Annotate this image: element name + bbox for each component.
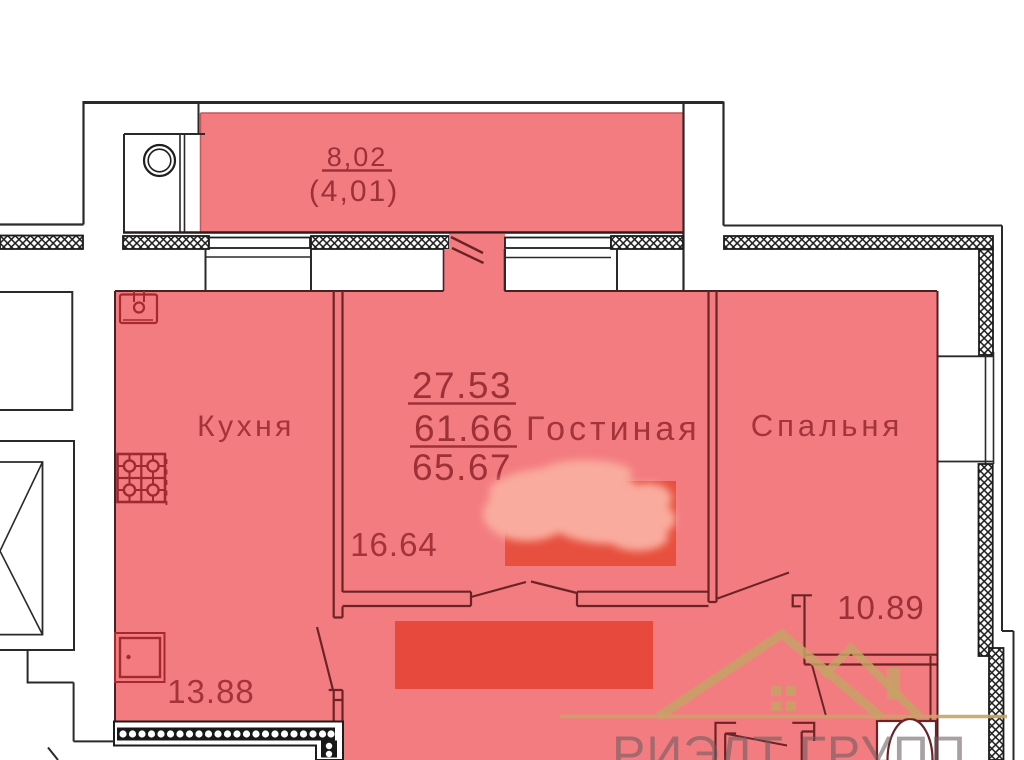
- svg-text:Спальня: Спальня: [751, 408, 904, 443]
- svg-text:Кухня: Кухня: [197, 410, 295, 443]
- svg-text:РИЭЛТ ГРУПП: РИЭЛТ ГРУПП: [612, 726, 967, 760]
- svg-text:10.89: 10.89: [837, 589, 925, 626]
- svg-text:Гостиная: Гостиная: [526, 410, 701, 448]
- svg-text:27.53: 27.53: [412, 365, 512, 406]
- svg-text:13.88: 13.88: [167, 673, 255, 710]
- svg-text:16.64: 16.64: [350, 526, 438, 563]
- svg-text:61.66: 61.66: [414, 408, 514, 449]
- svg-text:(4,01): (4,01): [309, 175, 399, 208]
- svg-text:8,02: 8,02: [327, 142, 388, 172]
